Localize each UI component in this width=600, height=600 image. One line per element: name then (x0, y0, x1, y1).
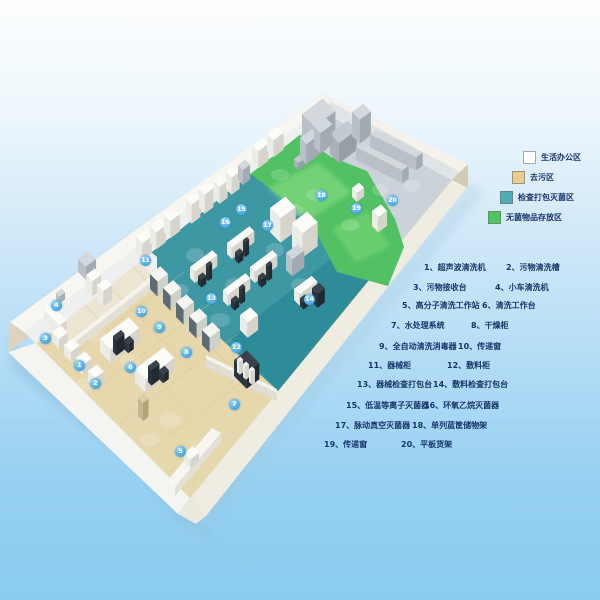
equipment-list-line: 11、器械柜12、敷料柜 (368, 360, 411, 371)
marker-20: 20 (387, 195, 398, 206)
marker-16: 16 (220, 217, 231, 228)
legend-label: 检查打包灭菌区 (518, 192, 574, 203)
marker-3: 3 (40, 333, 51, 344)
marker-15: 15 (236, 204, 247, 215)
marker-19: 19 (351, 203, 362, 214)
equipment-list-line: 13、器械检查打包台14、敷料检查打包台 (357, 379, 432, 390)
marker-13: 13 (206, 293, 217, 304)
equipment-list-line: 9、全自动清洗消毒器10、传递窗 (379, 341, 457, 352)
equipment-list-line: 1、超声波清洗机2、污物清洗槽 (424, 262, 486, 273)
equipment-list-line: 15、低温等离子灭菌器16、环氧乙烷灭菌器 (346, 400, 429, 411)
legend-label: 生活办公区 (541, 152, 581, 163)
equipment-list-line: 17、脉动真空灭菌器18、单列蓝筐储物架 (335, 420, 410, 431)
legend-swatch-sterile-storage (488, 211, 501, 224)
marker-17: 17 (262, 220, 273, 231)
marker-10: 10 (136, 306, 147, 317)
legend-label: 无菌物品存放区 (506, 212, 562, 223)
marker-1: 1 (74, 360, 85, 371)
marker-4: 4 (51, 300, 62, 311)
marker-2: 2 (90, 378, 101, 389)
legend-item-office: 生活办公区 (523, 150, 581, 165)
marker-18: 18 (316, 190, 327, 201)
legend-item-inspection: 检查打包灭菌区 (500, 190, 574, 205)
equipment-list-line: 5、高分子清洗工作站6、清洗工作台 (402, 300, 480, 311)
marker-5: 5 (175, 446, 186, 457)
legend-item-decontamination: 去污区 (512, 170, 554, 185)
legend-swatch-inspection (500, 191, 513, 204)
legend-label: 去污区 (530, 172, 554, 183)
marker-14: 14 (304, 294, 315, 305)
marker-9: 9 (154, 322, 165, 333)
legend-swatch-office (523, 151, 536, 164)
legend-swatch-decontamination (512, 171, 525, 184)
marker-12: 12 (231, 342, 242, 353)
equipment-list-line: 3、污物接收台4、小车清洗机 (413, 282, 467, 293)
legend-item-sterile-storage: 无菌物品存放区 (488, 210, 562, 225)
marker-8: 8 (181, 347, 192, 358)
equipment-list-line: 7、水处理系统8、干燥柜 (391, 320, 445, 331)
equipment-list-line: 19、传递窗20、平板货架 (324, 439, 367, 450)
marker-11: 11 (140, 255, 151, 266)
marker-6: 6 (125, 362, 136, 373)
marker-7: 7 (229, 399, 240, 410)
